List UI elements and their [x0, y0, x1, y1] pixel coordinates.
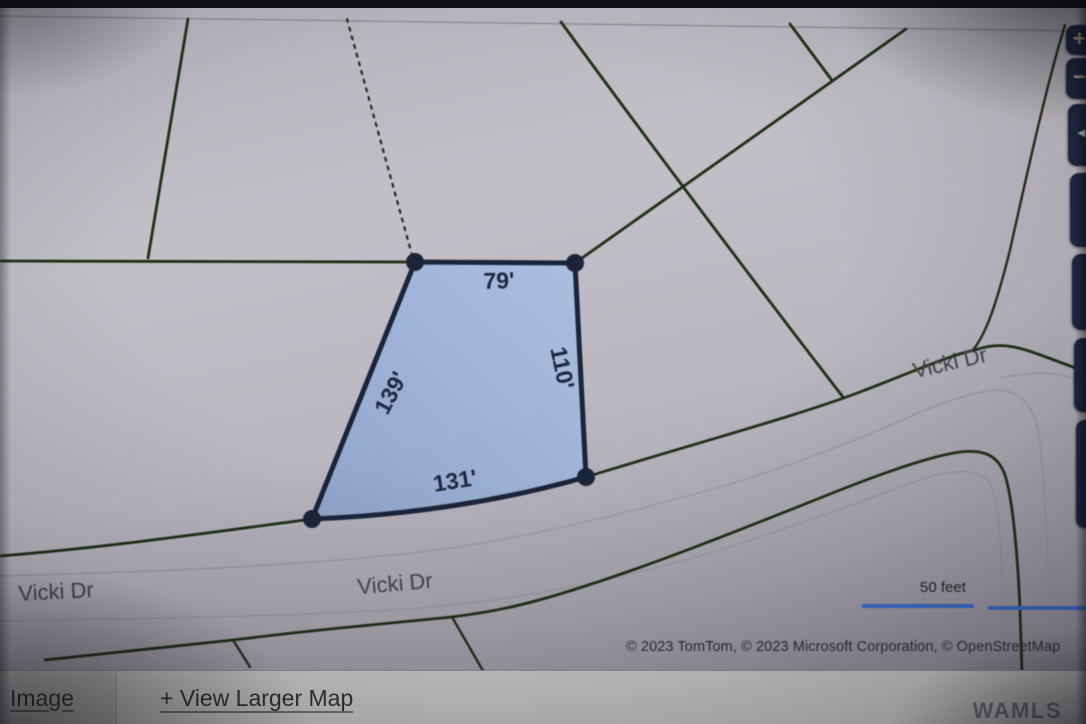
map-control-button[interactable]: [1076, 420, 1086, 528]
plus-icon: +: [1073, 26, 1086, 52]
faint-boundary-line: [0, 16, 1086, 31]
map-control-button[interactable]: [1070, 173, 1086, 247]
minus-icon: −: [1073, 64, 1086, 90]
map-control-button[interactable]: [1074, 338, 1086, 412]
dashed-boundary-line: [347, 19, 412, 255]
scale-label: 50 feet: [920, 579, 966, 596]
zoom-in-button[interactable]: +: [1066, 25, 1086, 55]
photo-top-edge: [0, 0, 1086, 8]
map-control-button[interactable]: [1072, 254, 1086, 330]
map-controls: + − ◄: [1026, 0, 1086, 560]
screen-photo: 79' 110' 131' 139' Vicki Dr Vicki Dr Vic…: [0, 0, 1086, 724]
view-larger-map-link[interactable]: + View Larger Map: [160, 685, 353, 712]
footer-divider: [116, 671, 117, 724]
zoom-out-button[interactable]: −: [1066, 58, 1086, 99]
map-attribution: © 2023 TomTom, © 2023 Microsoft Corporat…: [626, 639, 1060, 655]
parcel-dimension-top: 79': [483, 267, 515, 295]
image-tab[interactable]: Image: [0, 671, 116, 724]
footer-bar: Image + View Larger Map WAMLS: [0, 670, 1086, 724]
left-triangle-icon: ◄: [1075, 125, 1086, 140]
scale-bar-segment: [862, 604, 974, 608]
image-tab-label: Image: [10, 685, 74, 712]
wamls-watermark: WAMLS: [973, 698, 1062, 724]
scale-bar-segment: [988, 606, 1086, 610]
pan-button[interactable]: ◄: [1068, 104, 1086, 166]
road-label-vicki-dr-left: Vicki Dr: [18, 577, 95, 607]
map-canvas[interactable]: 79' 110' 131' 139' Vicki Dr Vicki Dr Vic…: [0, 0, 1086, 724]
